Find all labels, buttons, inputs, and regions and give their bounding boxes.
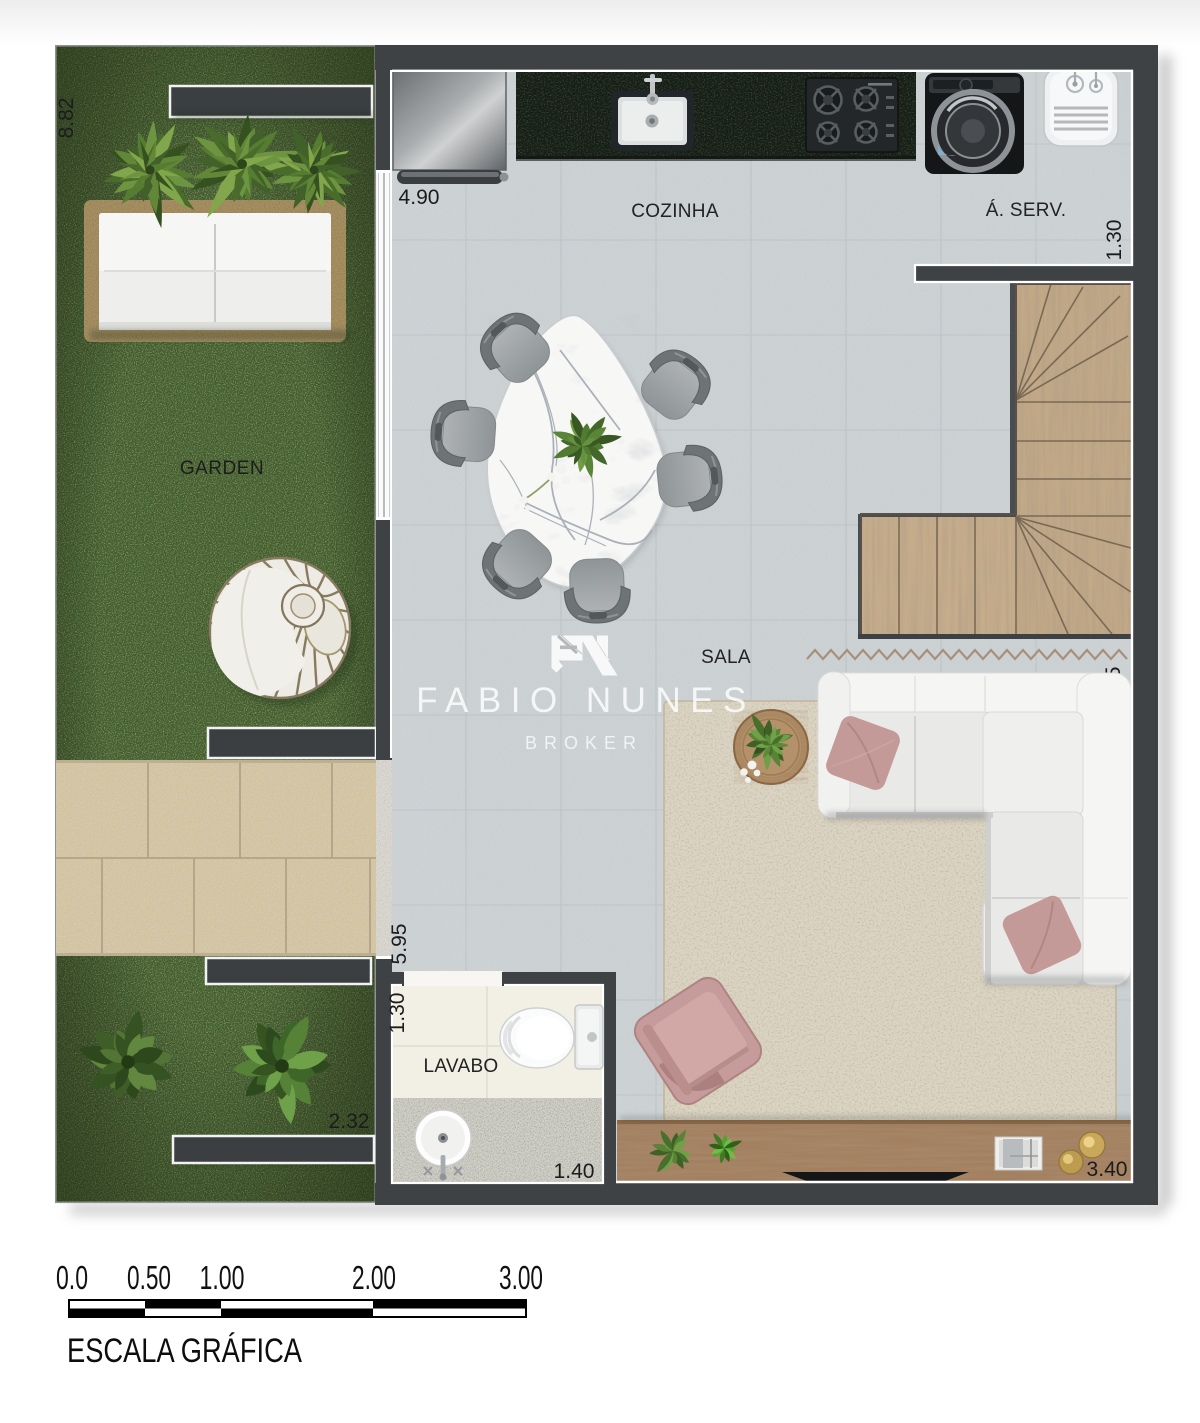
svg-text:1.30: 1.30 [1103, 220, 1126, 261]
svg-text:2.32: 2.32 [329, 1110, 370, 1133]
svg-text:2.00: 2.00 [352, 1259, 396, 1296]
svg-text:1.40: 1.40 [554, 1160, 595, 1183]
svg-text:ESCALA GRÁFICA: ESCALA GRÁFICA [67, 1332, 302, 1370]
svg-text:3.00: 3.00 [499, 1259, 543, 1296]
svg-text:GARDEN: GARDEN [180, 458, 264, 479]
svg-text:3.40: 3.40 [1087, 1158, 1128, 1181]
svg-text:5.95: 5.95 [388, 924, 411, 965]
svg-text:Á. SERV.: Á. SERV. [986, 200, 1067, 221]
svg-text:SALA: SALA [701, 647, 751, 668]
svg-text:1.00: 1.00 [200, 1259, 245, 1296]
svg-text:0.50: 0.50 [127, 1259, 171, 1296]
svg-text:1.30: 1.30 [386, 993, 409, 1034]
svg-text:LAVABO: LAVABO [423, 1056, 498, 1077]
svg-text:4.90: 4.90 [399, 186, 440, 209]
svg-text:8.82: 8.82 [55, 98, 78, 139]
svg-text:COZINHA: COZINHA [631, 201, 719, 222]
svg-text:0.0: 0.0 [56, 1259, 88, 1296]
svg-text:FABIO NUNES: FABIO NUNES [416, 681, 756, 720]
svg-text:BROKER: BROKER [525, 733, 643, 753]
